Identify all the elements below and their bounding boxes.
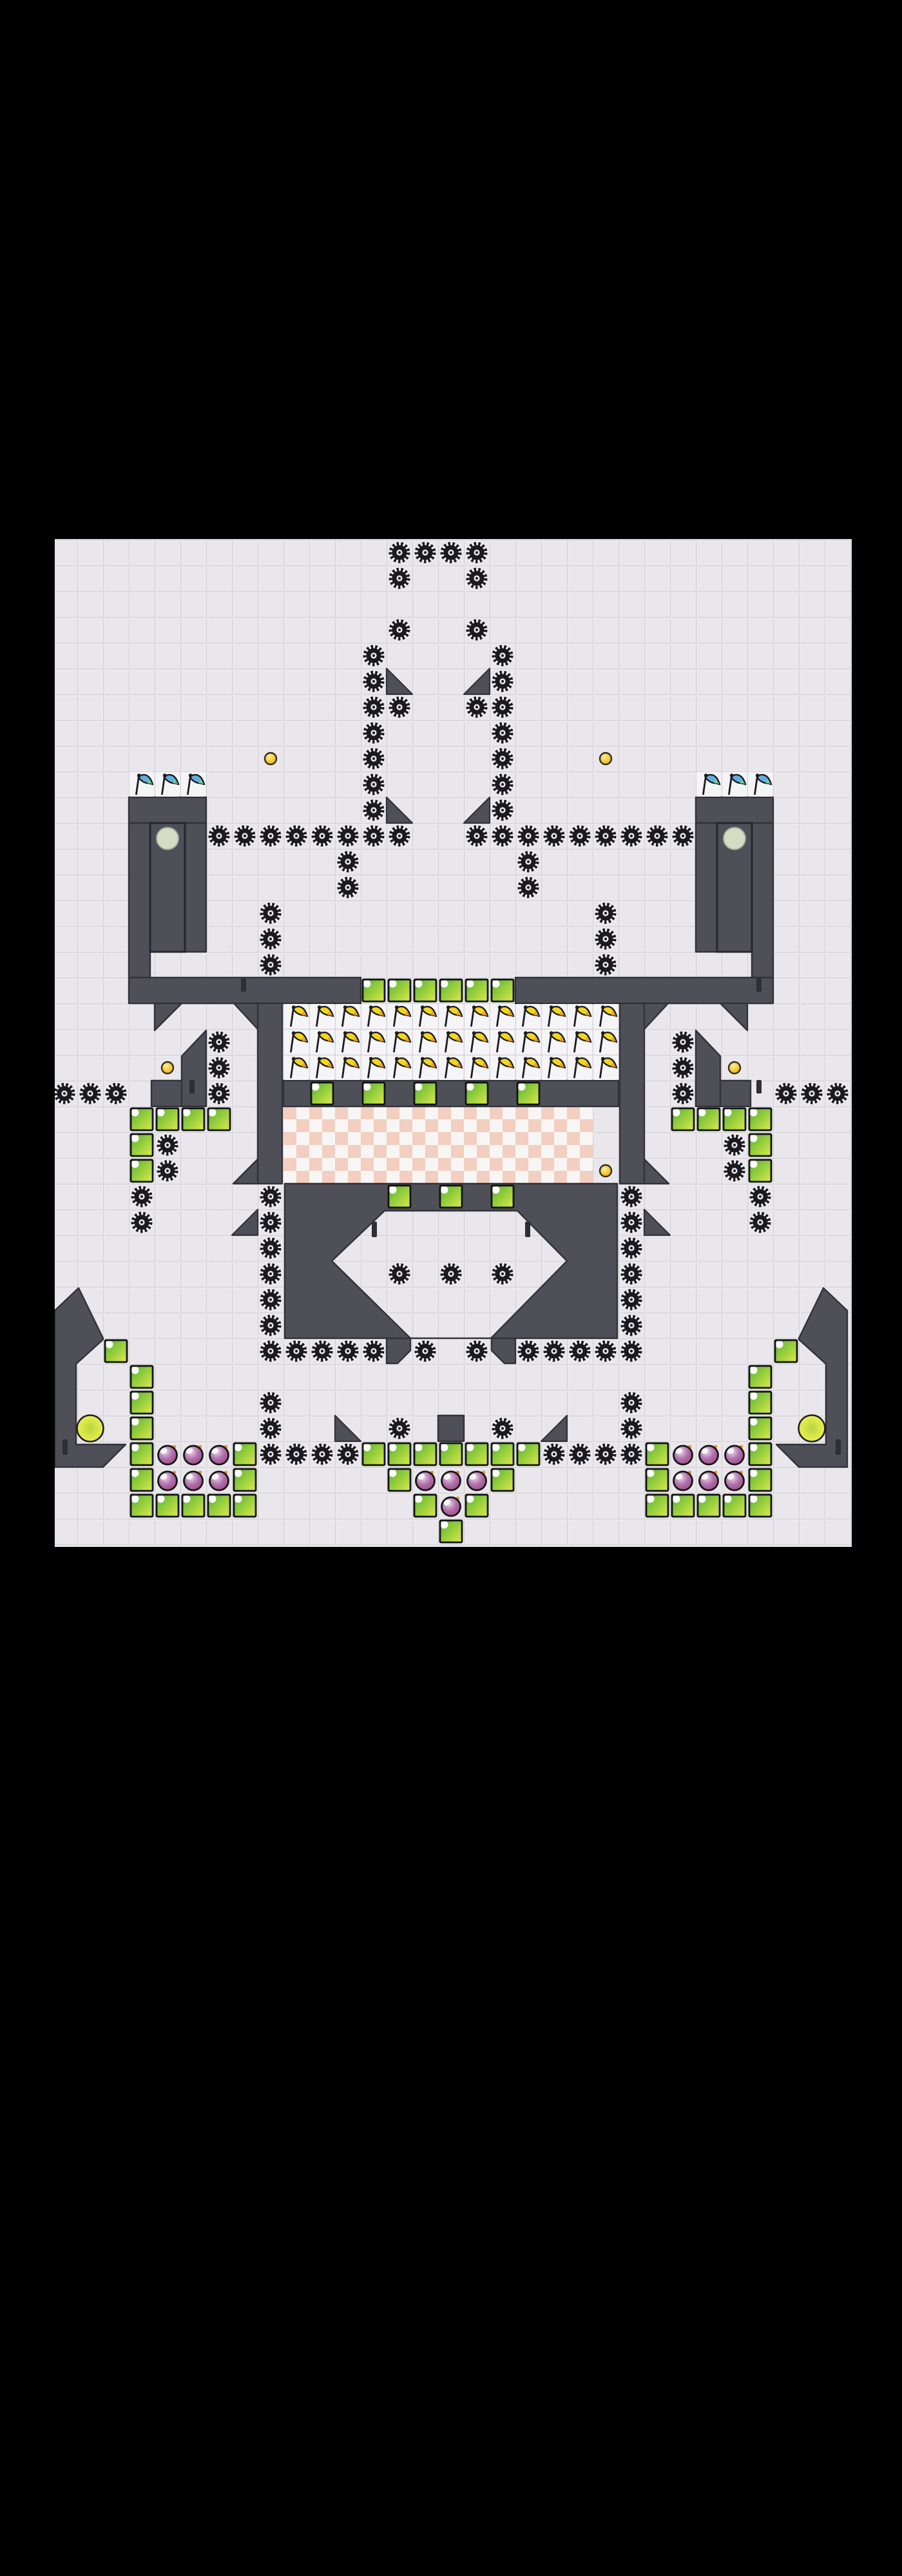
gear-icon — [79, 1083, 101, 1104]
green-gem-block — [105, 1340, 127, 1362]
gear-icon — [492, 1263, 513, 1285]
wall-block — [752, 823, 773, 978]
green-gem-block — [414, 980, 436, 1001]
gear-icon — [620, 1237, 642, 1259]
gear-icon — [672, 1031, 694, 1053]
gear-icon — [363, 748, 385, 770]
gear-icon — [517, 825, 539, 847]
purple-orb — [725, 1471, 744, 1490]
gear-icon — [801, 1083, 823, 1104]
gear-icon — [595, 902, 617, 924]
green-gem-block — [311, 1083, 333, 1104]
gear-icon — [131, 1186, 153, 1207]
purple-orb — [725, 1445, 744, 1464]
green-gem-block — [414, 1495, 436, 1517]
green-gem-block — [672, 1495, 694, 1517]
wall-tick — [62, 1439, 68, 1455]
gear-icon — [260, 1211, 282, 1233]
green-gem-block — [363, 980, 385, 1001]
green-gem-block — [517, 1443, 539, 1465]
gear-icon — [363, 645, 385, 667]
gear-icon — [543, 1443, 565, 1465]
green-gem-block — [646, 1469, 668, 1491]
gear-icon — [363, 722, 385, 744]
purple-orb — [416, 1471, 435, 1490]
gear-icon — [620, 1392, 642, 1414]
gear-icon — [620, 1314, 642, 1336]
wall-tick — [756, 978, 762, 992]
gear-icon — [157, 1134, 178, 1156]
wall-tick — [836, 1439, 841, 1455]
gear-icon — [285, 825, 307, 847]
green-gem-block — [466, 1495, 488, 1517]
wall-tick — [756, 1080, 762, 1094]
green-gem-block — [698, 1108, 720, 1130]
green-gem-block — [724, 1495, 745, 1517]
wall-tick — [525, 1222, 530, 1237]
gear-icon — [492, 799, 513, 821]
gear-icon — [466, 1340, 488, 1362]
green-gem-block — [517, 1083, 539, 1104]
green-gem-block — [234, 1495, 256, 1517]
green-gem-block — [724, 1108, 745, 1130]
green-gem-block — [389, 1186, 410, 1207]
gear-icon — [105, 1083, 127, 1104]
gear-icon — [414, 1340, 436, 1362]
screenshot-root — [0, 0, 902, 2576]
gear-icon — [466, 825, 488, 847]
purple-orb — [442, 1471, 461, 1490]
coin-icon — [265, 753, 276, 764]
green-gem-block — [466, 1443, 488, 1465]
gear-icon — [517, 876, 539, 898]
wall-block — [438, 1416, 464, 1441]
green-gem-block — [363, 1083, 385, 1104]
wall-block — [696, 823, 717, 952]
gear-icon — [414, 542, 436, 563]
green-gem-block — [492, 1186, 513, 1207]
green-gem-block — [466, 980, 488, 1001]
level-canvas[interactable] — [55, 539, 852, 1547]
green-gem-block — [131, 1495, 153, 1517]
gear-icon — [517, 1340, 539, 1362]
gear-icon — [260, 902, 282, 924]
gear-icon — [595, 1443, 617, 1465]
green-gem-block — [131, 1469, 153, 1491]
gear-icon — [595, 928, 617, 950]
gear-icon — [389, 619, 410, 641]
green-gem-block — [749, 1495, 771, 1517]
gear-icon — [311, 1340, 333, 1362]
gear-icon — [724, 1134, 745, 1156]
gear-icon — [363, 773, 385, 795]
gear-icon — [672, 1083, 694, 1104]
gear-icon — [569, 1443, 591, 1465]
gear-icon — [208, 1057, 230, 1079]
green-gem-block — [208, 1495, 230, 1517]
purple-orb — [442, 1497, 461, 1516]
gear-icon — [234, 825, 256, 847]
gear-icon — [724, 1160, 745, 1182]
wall-block — [620, 1003, 644, 1184]
green-gem-block — [131, 1392, 153, 1414]
gear-icon — [440, 542, 462, 563]
gear-icon — [389, 696, 410, 718]
gear-icon — [466, 542, 488, 563]
green-gem-block — [131, 1417, 153, 1439]
green-gem-block — [749, 1469, 771, 1491]
coin-icon — [600, 753, 611, 764]
gear-icon — [260, 1314, 282, 1336]
green-gem-block — [749, 1134, 771, 1156]
gear-icon — [620, 1417, 642, 1439]
green-gem-block — [492, 980, 513, 1001]
purple-orb — [700, 1445, 718, 1464]
gear-icon — [749, 1186, 771, 1207]
gear-icon — [620, 1186, 642, 1207]
gear-icon — [620, 1443, 642, 1465]
gear-icon — [260, 825, 282, 847]
coin-icon — [600, 1165, 611, 1177]
green-gem-block — [440, 1186, 462, 1207]
wall-tick — [241, 978, 246, 992]
gear-icon — [337, 851, 359, 873]
gear-icon — [440, 1263, 462, 1285]
checker-floor — [283, 1106, 593, 1184]
gear-icon — [389, 567, 410, 589]
gear-icon — [285, 1443, 307, 1465]
gear-icon — [389, 825, 410, 847]
green-gem-block — [698, 1495, 720, 1517]
gear-icon — [208, 1031, 230, 1053]
green-gem-block — [440, 1520, 462, 1542]
purple-orb — [210, 1445, 229, 1464]
green-gem-block — [646, 1495, 668, 1517]
gear-icon — [543, 825, 565, 847]
green-gem-block — [749, 1366, 771, 1388]
wall-block — [185, 823, 206, 952]
gear-icon — [131, 1211, 153, 1233]
green-gem-block — [131, 1108, 153, 1130]
gear-icon — [260, 1237, 282, 1259]
gear-icon — [775, 1083, 797, 1104]
green-gem-block — [414, 1083, 436, 1104]
green-gem-block — [389, 980, 410, 1001]
gear-icon — [260, 1417, 282, 1439]
gear-icon — [492, 670, 513, 692]
wall-block — [515, 978, 773, 1003]
gear-icon — [620, 1263, 642, 1285]
gear-icon — [466, 567, 488, 589]
gear-icon — [827, 1083, 849, 1104]
green-gem-block — [749, 1392, 771, 1414]
gear-icon — [389, 542, 410, 563]
purple-orb — [674, 1471, 693, 1490]
green-gem-block — [749, 1108, 771, 1130]
gear-icon — [363, 799, 385, 821]
gear-icon — [260, 1443, 282, 1465]
purple-orb — [210, 1471, 229, 1490]
gear-icon — [337, 1340, 359, 1362]
gear-icon — [492, 722, 513, 744]
green-gem-block — [234, 1443, 256, 1465]
gear-icon — [260, 1289, 282, 1311]
big-yellow-circle — [77, 1416, 104, 1442]
green-gem-block — [646, 1443, 668, 1465]
gear-icon — [466, 696, 488, 718]
gear-icon — [363, 825, 385, 847]
gear-icon — [620, 1340, 642, 1362]
green-gem-block — [389, 1443, 410, 1465]
purple-orb — [158, 1471, 177, 1490]
green-gem-block — [234, 1469, 256, 1491]
big-yellow-circle — [799, 1416, 825, 1442]
gear-icon — [260, 1392, 282, 1414]
wall-tick — [372, 1222, 377, 1237]
green-gem-block — [440, 1443, 462, 1465]
gear-icon — [208, 1083, 230, 1104]
gear-icon — [363, 1340, 385, 1362]
gear-icon — [543, 1340, 565, 1362]
green-gem-block — [775, 1340, 797, 1362]
pale-circle — [157, 828, 178, 849]
green-gem-block — [440, 980, 462, 1001]
gear-icon — [337, 1443, 359, 1465]
coin-icon — [729, 1062, 740, 1074]
green-gem-block — [466, 1083, 488, 1104]
green-gem-block — [182, 1108, 204, 1130]
purple-orb — [184, 1471, 203, 1490]
wall-block — [129, 823, 150, 978]
wall-block — [258, 1003, 282, 1184]
green-gem-block — [363, 1443, 385, 1465]
gear-icon — [672, 825, 694, 847]
green-gem-block — [131, 1160, 153, 1182]
gear-icon — [492, 825, 513, 847]
green-gem-block — [131, 1134, 153, 1156]
gear-icon — [646, 825, 668, 847]
gear-icon — [260, 928, 282, 950]
green-gem-block — [182, 1495, 204, 1517]
green-gem-block — [131, 1366, 153, 1388]
gear-icon — [208, 825, 230, 847]
gear-icon — [620, 1289, 642, 1311]
gear-icon — [260, 954, 282, 976]
gear-icon — [492, 645, 513, 667]
green-gem-block — [749, 1417, 771, 1439]
gear-icon — [595, 1340, 617, 1362]
gear-icon — [337, 876, 359, 898]
green-gem-block — [131, 1443, 153, 1465]
gear-icon — [363, 696, 385, 718]
purple-orb — [468, 1471, 486, 1490]
pale-circle — [724, 828, 745, 849]
gear-icon — [492, 773, 513, 795]
purple-orb — [158, 1445, 177, 1464]
green-gem-block — [389, 1469, 410, 1491]
gear-icon — [492, 696, 513, 718]
gear-icon — [595, 825, 617, 847]
gear-icon — [672, 1057, 694, 1079]
gear-icon — [595, 954, 617, 976]
wall-block — [129, 797, 206, 823]
gear-icon — [620, 825, 642, 847]
purple-orb — [674, 1445, 693, 1464]
gear-icon — [311, 1443, 333, 1465]
gear-icon — [466, 619, 488, 641]
gear-icon — [620, 1211, 642, 1233]
gear-icon — [363, 670, 385, 692]
gear-icon — [311, 825, 333, 847]
gear-icon — [569, 1340, 591, 1362]
gear-icon — [260, 1263, 282, 1285]
green-gem-block — [492, 1469, 513, 1491]
gear-icon — [337, 825, 359, 847]
gear-icon — [749, 1211, 771, 1233]
green-gem-block — [208, 1108, 230, 1130]
gear-icon — [492, 1417, 513, 1439]
gear-icon — [389, 1417, 410, 1439]
green-gem-block — [157, 1495, 178, 1517]
wall-tick — [189, 1080, 195, 1094]
purple-orb — [700, 1471, 718, 1490]
game-board[interactable] — [55, 539, 852, 1547]
purple-orb — [184, 1445, 203, 1464]
green-gem-block — [157, 1108, 178, 1130]
gear-icon — [285, 1340, 307, 1362]
wall-block — [696, 797, 773, 823]
coin-icon — [162, 1062, 173, 1074]
gear-icon — [517, 851, 539, 873]
checker-zone — [283, 1106, 593, 1184]
gear-icon — [389, 1263, 410, 1285]
green-gem-block — [672, 1108, 694, 1130]
gear-icon — [260, 1186, 282, 1207]
gear-icon — [569, 825, 591, 847]
green-gem-block — [414, 1443, 436, 1465]
green-gem-block — [749, 1160, 771, 1182]
gear-icon — [260, 1340, 282, 1362]
gear-icon — [492, 748, 513, 770]
green-gem-block — [492, 1443, 513, 1465]
green-gem-block — [749, 1443, 771, 1465]
gear-icon — [157, 1160, 178, 1182]
